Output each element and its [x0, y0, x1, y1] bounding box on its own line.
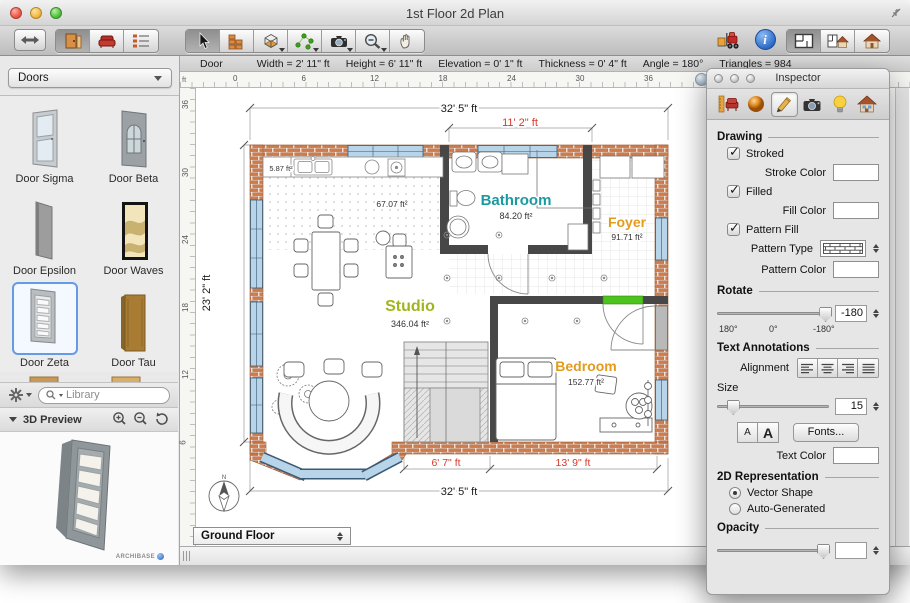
updown-arrows-icon — [337, 532, 343, 541]
expand-icon[interactable] — [890, 6, 902, 24]
door-label: Door Tau — [111, 357, 155, 371]
view-2d-button[interactable] — [787, 30, 821, 52]
dim-top-red: 11' 2" ft — [502, 117, 538, 129]
info-icon: i — [755, 29, 776, 50]
ruler-number: 36 — [181, 100, 190, 109]
chevron-down-icon — [154, 76, 162, 81]
plan-and-house-icon — [827, 33, 849, 49]
ruler-number: 24 — [507, 74, 516, 83]
category-value: Doors — [18, 72, 49, 84]
sofa-icon — [96, 32, 118, 50]
door-thumbnail — [24, 188, 66, 265]
vertical-scrollbar[interactable] — [895, 88, 909, 546]
preview-3d-area[interactable]: ARCHIBASE — [0, 432, 178, 565]
ruler-number: 36 — [644, 74, 653, 83]
ruler-number: 18 — [439, 74, 448, 83]
dim-top: 32' 5" ft — [441, 103, 478, 115]
alignment-label: Alignment — [740, 362, 789, 374]
fill-color-label: Fill Color — [783, 205, 826, 217]
tab-drawing[interactable] — [771, 92, 798, 117]
vector-shape-label: Vector Shape — [747, 487, 813, 499]
align-justify-icon — [862, 363, 875, 374]
drawing-header: Drawing — [717, 131, 762, 143]
library-sidebar: Doors Door Sigma Door Beta — [0, 56, 180, 565]
stroked-checkbox[interactable] — [727, 147, 740, 160]
preview-rotate-button[interactable] — [154, 411, 169, 429]
pencil-icon — [774, 94, 794, 114]
room-foyer-area: 91.71 ft² — [611, 232, 642, 242]
ruler-number: 6 — [179, 440, 188, 444]
vertical-ruler: 36302418126 — [180, 88, 196, 546]
align-center-button[interactable] — [818, 359, 838, 377]
forklift-icon — [716, 29, 742, 51]
size-label: Size — [717, 382, 738, 394]
door-grid-clipped-row — [0, 372, 179, 382]
pan-tool-button[interactable] — [390, 30, 424, 52]
door-panel-icon — [62, 32, 84, 50]
door-label: Door Epsilon — [13, 265, 76, 279]
opacity-header: Opacity — [717, 522, 759, 534]
preview-zoom-out-button[interactable] — [133, 411, 148, 429]
door-item-zeta[interactable]: Door Zeta — [0, 280, 89, 372]
pattern-fill-label: Pattern Fill — [746, 224, 799, 236]
auto-generated-label: Auto-Generated — [747, 503, 825, 515]
door-thumbnail — [12, 280, 78, 357]
plan-2d-icon — [794, 33, 814, 49]
status-height: Height = 6' 11" ft — [346, 58, 422, 70]
action-menu-button[interactable] — [8, 387, 32, 403]
compass-icon: N — [209, 475, 239, 511]
dim-bottom: 32' 5" ft — [441, 486, 478, 498]
door-item-beta[interactable]: Door Beta — [89, 96, 178, 188]
library-search-input[interactable]: Library — [38, 387, 170, 404]
furniture-button[interactable] — [90, 30, 124, 52]
gear-icon — [8, 387, 24, 403]
dropdown-caret-icon — [313, 48, 319, 52]
door-label: Door Sigma — [15, 173, 73, 187]
text-color-well[interactable] — [833, 447, 879, 464]
room-foyer: Foyer — [608, 214, 647, 230]
dropdown-caret-icon — [279, 48, 285, 52]
tab-camera[interactable] — [798, 92, 825, 117]
select-tool-button[interactable] — [186, 30, 220, 52]
preview-title: 3D Preview — [23, 414, 82, 426]
camera-tool-button[interactable] — [322, 30, 356, 52]
rotate-slider-thumb[interactable] — [819, 307, 832, 322]
minimize-button[interactable] — [730, 74, 739, 83]
tab-object-info[interactable] — [715, 92, 742, 117]
bedroom-door — [603, 296, 643, 304]
tab-light[interactable] — [826, 92, 853, 117]
door-label: Door Zeta — [20, 357, 69, 371]
vector-shape-radio[interactable] — [729, 487, 741, 499]
search-icon — [46, 390, 56, 400]
room-bathroom: Bathroom — [481, 192, 552, 209]
opacity-slider-thumb[interactable] — [817, 544, 830, 559]
representation-header: 2D Representation — [717, 471, 819, 483]
inspector-window-buttons — [714, 74, 755, 83]
brick-pattern-icon — [823, 243, 863, 254]
align-left-icon — [801, 363, 814, 374]
ruler-number: 12 — [181, 370, 190, 379]
area-closet: 5.87 ft² — [269, 164, 293, 173]
door-grid: Door Sigma Door Beta Door Epsilon — [0, 96, 178, 372]
font-size-buttons: A A — [737, 422, 779, 443]
ruler-number: 24 — [181, 235, 190, 244]
ruler-number: 0 — [233, 74, 237, 83]
exterior-door — [656, 306, 668, 350]
wall-tool-button[interactable] — [220, 30, 254, 52]
info-button[interactable]: i — [752, 29, 778, 50]
stroke-color-well[interactable] — [833, 164, 879, 181]
tools-group — [185, 29, 425, 53]
search-placeholder: Library — [66, 389, 100, 401]
status-object: Door — [200, 58, 223, 70]
category-dropdown[interactable]: Doors — [8, 68, 172, 88]
stroke-color-label: Stroke Color — [765, 167, 826, 179]
ruler-number: 30 — [576, 74, 585, 83]
rotate-stepper[interactable] — [873, 309, 879, 318]
opacity-stepper[interactable] — [873, 546, 879, 555]
chevron-down-icon — [26, 393, 32, 397]
ruler-number: 18 — [181, 303, 190, 312]
selection-highlight — [12, 282, 78, 355]
tab-building[interactable] — [854, 92, 881, 117]
double-arrow-icon — [19, 32, 41, 48]
close-button[interactable] — [714, 74, 723, 83]
view-split-button[interactable] — [821, 30, 855, 52]
light-bulb-icon — [831, 94, 849, 114]
screen: 1st Floor 2d Plan — [0, 0, 910, 603]
status-angle: Angle = 180° — [643, 58, 704, 70]
floor-selector-dropdown[interactable]: Ground Floor — [193, 527, 351, 545]
panel-toggle-group — [55, 29, 159, 53]
size-slider[interactable] — [717, 405, 829, 408]
preview-header: 3D Preview — [0, 408, 178, 432]
pattern-type-label: Pattern Type — [751, 243, 813, 255]
pattern-fill-checkbox[interactable] — [727, 223, 740, 236]
dim-bottom-red-right: 13' 9" ft — [556, 457, 591, 469]
filled-label: Filled — [746, 186, 772, 198]
camera-icon — [801, 94, 823, 114]
ruler-number: 6 — [302, 74, 306, 83]
title-bar: 1st Floor 2d Plan — [0, 0, 910, 26]
view-3d-button[interactable] — [855, 30, 889, 52]
door-item-sigma[interactable]: Door Sigma — [0, 96, 89, 188]
inspector-title-bar: Inspector — [707, 69, 889, 89]
align-center-icon — [821, 363, 834, 374]
nav-back-forward-button[interactable] — [14, 29, 46, 51]
wall-icon — [226, 32, 248, 50]
size-value-field[interactable]: 15 — [835, 398, 867, 415]
filled-checkbox[interactable] — [727, 185, 740, 198]
text-color-label: Text Color — [776, 450, 826, 462]
door-thumbnail — [113, 96, 155, 173]
window-title: 1st Floor 2d Plan — [0, 6, 910, 21]
toolbar: i — [0, 26, 910, 56]
zoom-tool-button[interactable] — [356, 30, 390, 52]
room-studio-area: 346.04 ft² — [391, 319, 429, 329]
status-width: Width = 2' 11" ft — [257, 58, 330, 70]
door-3d-preview — [34, 432, 144, 565]
larger-text-button[interactable]: A — [758, 422, 779, 443]
dropdown-caret-icon — [347, 48, 353, 52]
inspector-tabs — [707, 89, 889, 120]
ruler-number: 12 — [370, 74, 379, 83]
library-bar: Library — [0, 382, 178, 408]
zoom-button[interactable] — [746, 74, 755, 83]
opacity-value-field[interactable] — [835, 542, 867, 559]
status-elevation: Elevation = 0' 1" ft — [438, 58, 522, 70]
floor-plan[interactable]: N 32' 5" ft 11' 2" ft 23' 2" ft 6' 7" ft… — [196, 88, 710, 533]
house-icon — [862, 33, 882, 49]
dim-bottom-red-left: 6' 7" ft — [431, 457, 460, 469]
resize-grip[interactable] — [183, 551, 190, 561]
room-bedroom-area: 152.77 ft² — [568, 377, 604, 387]
list-icon — [130, 32, 152, 50]
rotate-slider[interactable] — [717, 312, 829, 315]
inspector-body: Drawing Stroked Stroke Color Filled Fill… — [707, 120, 889, 559]
pattern-type-stepper[interactable] — [873, 244, 879, 253]
room-bathroom-area: 84.20 ft² — [499, 211, 532, 221]
cursor-icon — [192, 32, 214, 50]
disclosure-triangle-icon[interactable] — [9, 417, 17, 422]
rotate-value-field[interactable]: -180 — [835, 305, 867, 322]
house-icon — [856, 94, 878, 114]
hand-icon — [396, 32, 418, 50]
ruler-number: 30 — [181, 168, 190, 177]
door-thumbnail — [113, 280, 155, 357]
pattern-color-well[interactable] — [833, 261, 879, 278]
ruler-furniture-icon — [718, 94, 740, 114]
area-kitchen: 67.07 ft² — [376, 199, 407, 209]
text-annotations-header: Text Annotations — [717, 342, 810, 354]
globe-icon — [157, 553, 164, 560]
floor-selector-value: Ground Floor — [201, 530, 274, 542]
path-tool-button[interactable] — [288, 30, 322, 52]
ruler-unit: ft — [182, 75, 186, 84]
size-slider-thumb[interactable] — [727, 400, 740, 415]
stairs — [404, 342, 488, 442]
tab-materials[interactable] — [743, 92, 770, 117]
door-item-epsilon[interactable]: Door Epsilon — [0, 188, 89, 280]
status-thickness: Thickness = 0' 4" ft — [538, 58, 626, 70]
door-label: Door Beta — [109, 173, 159, 187]
dim-left: 23' 2" ft — [201, 275, 213, 312]
door-item-waves[interactable]: Door Waves — [89, 188, 178, 280]
auto-generated-radio[interactable] — [729, 503, 741, 515]
preview-zoom-in-button[interactable] — [112, 411, 127, 429]
inspector-title: Inspector — [775, 72, 820, 84]
materials-list-button[interactable] — [124, 30, 158, 52]
alignment-buttons — [797, 358, 879, 378]
align-justify-button[interactable] — [858, 359, 878, 377]
pattern-color-label: Pattern Color — [761, 264, 826, 276]
room-studio: Studio — [385, 298, 435, 315]
svg-text:N: N — [222, 475, 226, 481]
stroked-label: Stroked — [746, 148, 784, 160]
export-button[interactable] — [714, 29, 744, 51]
door-item-tau[interactable]: Door Tau — [89, 280, 178, 372]
align-right-icon — [841, 363, 854, 374]
archibase-watermark: ARCHIBASE — [116, 553, 164, 560]
size-stepper[interactable] — [873, 402, 879, 411]
building-elements-button[interactable] — [56, 30, 90, 52]
pattern-type-selector[interactable] — [820, 240, 866, 257]
align-left-button[interactable] — [798, 359, 818, 377]
door-thumbnail — [24, 96, 66, 173]
room-bedroom: Bedroom — [555, 358, 616, 374]
fonts-button[interactable]: Fonts... — [793, 423, 859, 442]
view-mode-group — [786, 29, 890, 53]
rotate-scale: 180° 0° -180° — [717, 324, 879, 335]
align-right-button[interactable] — [838, 359, 858, 377]
inspector-window: Inspector Drawing — [706, 68, 890, 595]
door-label: Door Waves — [103, 265, 163, 279]
sphere-icon — [746, 94, 766, 114]
fill-color-well[interactable] — [833, 202, 879, 219]
opacity-slider[interactable] — [717, 549, 829, 552]
smaller-text-button[interactable]: A — [737, 422, 758, 443]
dropdown-caret-icon — [381, 48, 387, 52]
chevron-down-icon — [59, 394, 63, 397]
rotate-header: Rotate — [717, 285, 753, 297]
floor-tool-button[interactable] — [254, 30, 288, 52]
door-thumbnail — [113, 188, 155, 265]
